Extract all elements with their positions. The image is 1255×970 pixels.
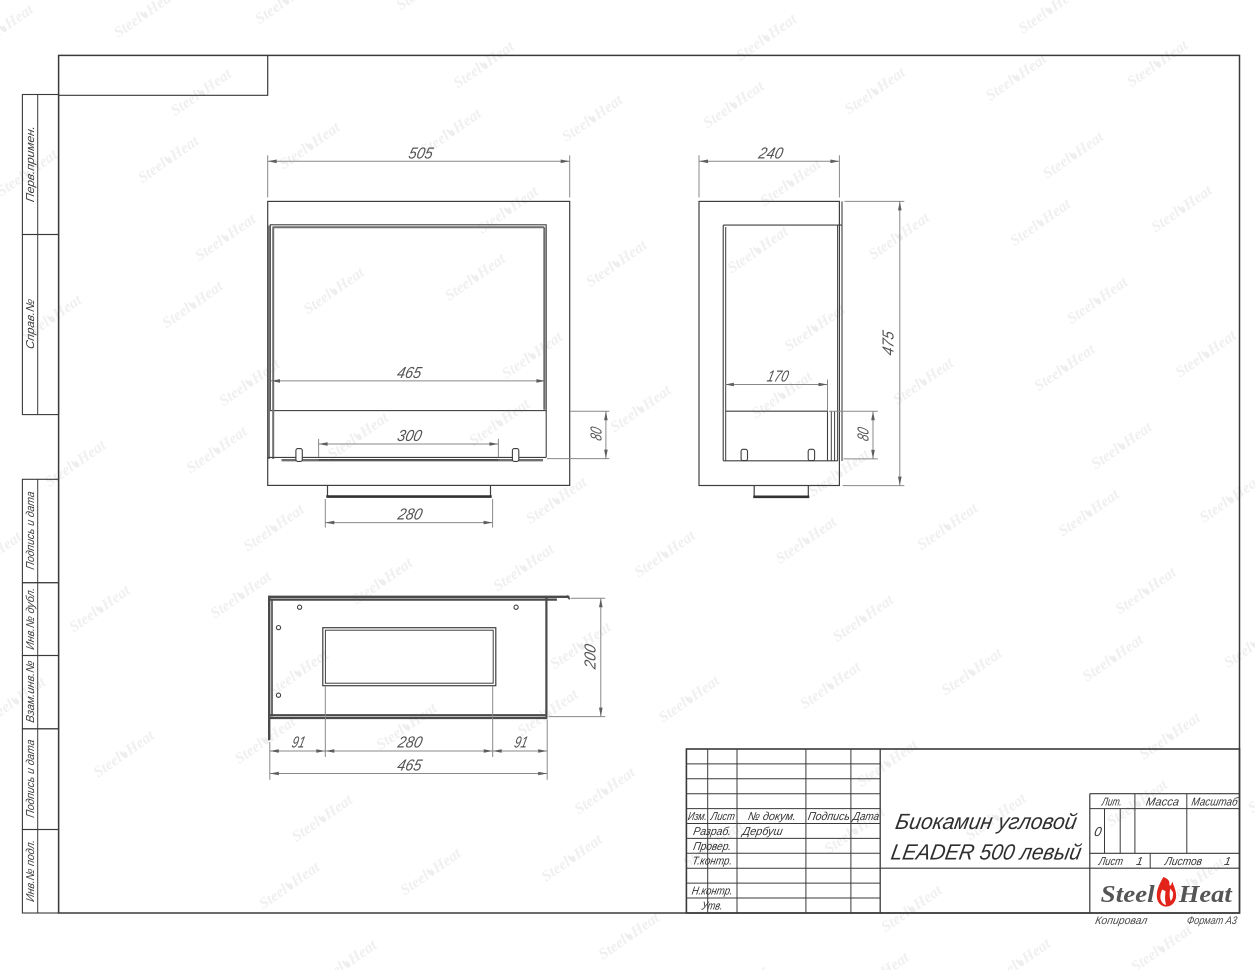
svg-text:280: 280 — [395, 734, 424, 752]
svg-text:Heat: Heat — [1178, 882, 1234, 908]
svg-text:Масштаб: Масштаб — [1190, 796, 1239, 808]
svg-text:Копировал: Копировал — [1094, 915, 1149, 927]
svg-text:Биокамин угловой: Биокамин угловой — [894, 809, 1079, 834]
svg-text:Взам.инв.№: Взам.инв.№ — [25, 659, 37, 724]
svg-text:Справ.№: Справ.№ — [25, 298, 37, 351]
svg-text:240: 240 — [756, 145, 785, 163]
svg-text:Т.контр.: Т.контр. — [691, 856, 733, 868]
svg-text:280: 280 — [395, 506, 424, 524]
svg-text:Лист: Лист — [1097, 856, 1124, 868]
svg-text:Листов: Листов — [1163, 856, 1203, 868]
svg-text:Провер.: Провер. — [692, 841, 732, 853]
svg-text:200: 200 — [581, 642, 599, 671]
svg-text:Подпись: Подпись — [807, 811, 851, 823]
svg-text:Лит.: Лит. — [1100, 796, 1123, 808]
svg-text:Разраб.: Разраб. — [692, 826, 732, 838]
svg-text:Дата: Дата — [850, 811, 880, 823]
svg-text:Подпись и дата: Подпись и дата — [25, 490, 37, 571]
svg-text:Steel: Steel — [1101, 882, 1155, 908]
svg-text:Лист: Лист — [709, 811, 736, 823]
svg-text:Подпись и дата: Подпись и дата — [25, 738, 37, 819]
svg-text:Дербуш: Дербуш — [740, 826, 784, 838]
svg-text:Н.контр.: Н.контр. — [691, 886, 734, 898]
svg-text:Утв.: Утв. — [700, 900, 724, 912]
svg-text:170: 170 — [765, 368, 790, 386]
svg-text:Формат А3: Формат А3 — [1186, 915, 1239, 927]
svg-text:Инв.№ дубл.: Инв.№ дубл. — [25, 587, 37, 651]
svg-text:Перв.примен.: Перв.примен. — [25, 125, 37, 203]
svg-text:Масса: Масса — [1145, 796, 1181, 808]
svg-text:№ докум.: № докум. — [747, 811, 797, 823]
svg-text:Инв.№ подл.: Инв.№ подл. — [25, 839, 37, 903]
svg-text:LEADER 500 левый: LEADER 500 левый — [889, 840, 1083, 865]
svg-text:300: 300 — [396, 427, 424, 445]
svg-text:Изм.: Изм. — [687, 811, 708, 823]
